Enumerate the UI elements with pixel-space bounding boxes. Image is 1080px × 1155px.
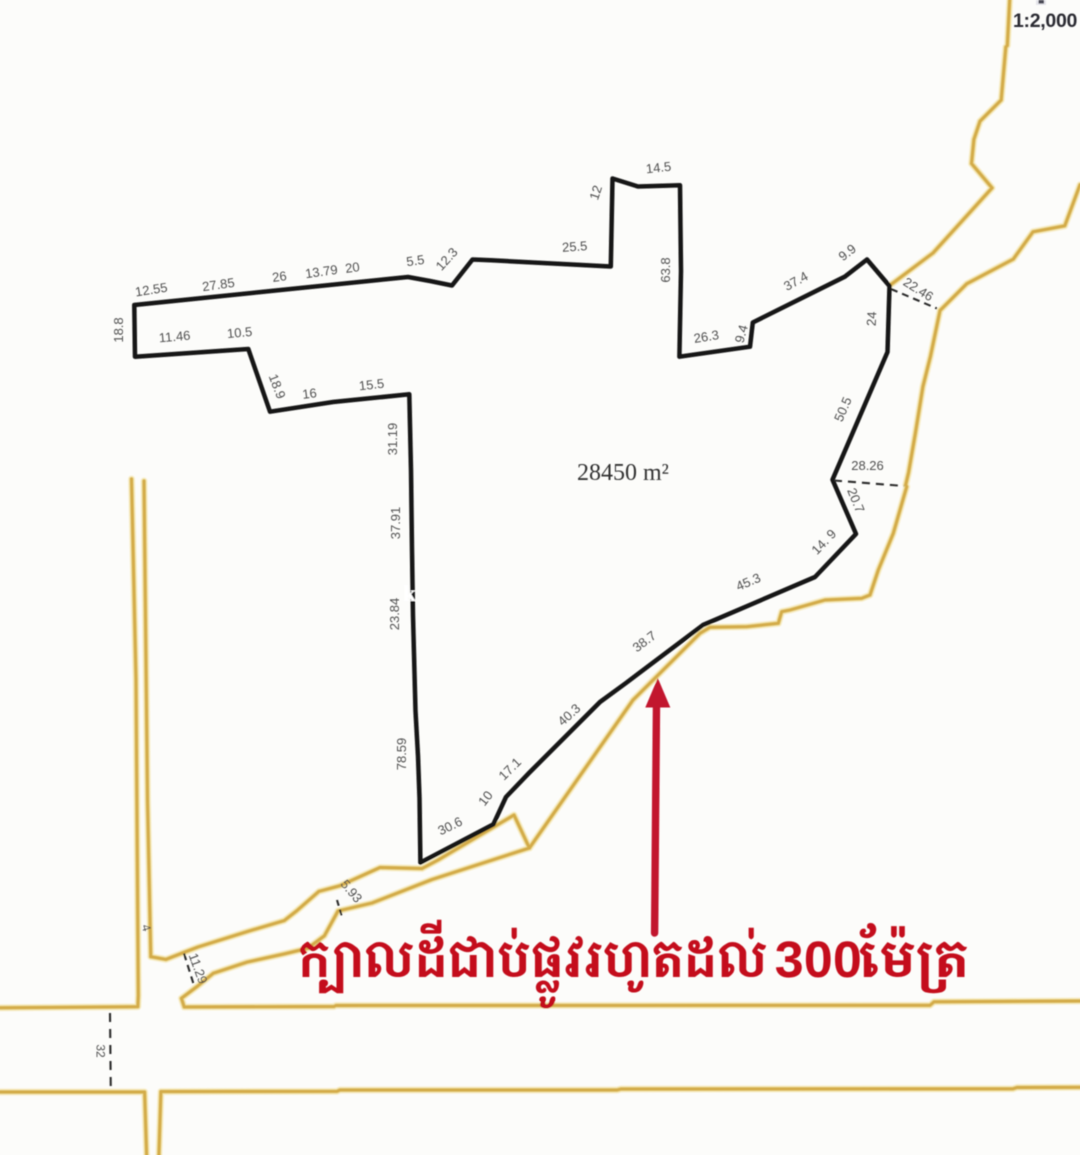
svg-text:20: 20 (344, 259, 360, 276)
svg-text:31.19: 31.19 (385, 423, 400, 456)
svg-text:28.26: 28.26 (851, 458, 884, 473)
svg-text:78.59: 78.59 (394, 738, 409, 771)
svg-text:5.5: 5.5 (405, 252, 425, 269)
svg-text:15.5: 15.5 (358, 376, 385, 394)
svg-text:25.5: 25.5 (562, 238, 588, 255)
svg-text:23.84: 23.84 (387, 598, 402, 631)
svg-text:10.5: 10.5 (226, 324, 253, 341)
svg-text:26: 26 (271, 268, 287, 285)
svg-text:37.91: 37.91 (388, 507, 403, 540)
svg-text:18.8: 18.8 (111, 317, 126, 342)
svg-text:28450 m²: 28450 m² (577, 460, 669, 486)
svg-text:63.8: 63.8 (658, 257, 673, 282)
svg-text:k: k (403, 581, 416, 606)
svg-text:16: 16 (301, 385, 317, 402)
svg-text:1:2,000: 1:2,000 (1013, 10, 1077, 32)
svg-text:32: 32 (94, 1044, 108, 1058)
svg-text:14.5: 14.5 (645, 159, 672, 177)
svg-text:24: 24 (864, 311, 880, 326)
svg-text:11.46: 11.46 (158, 328, 191, 346)
